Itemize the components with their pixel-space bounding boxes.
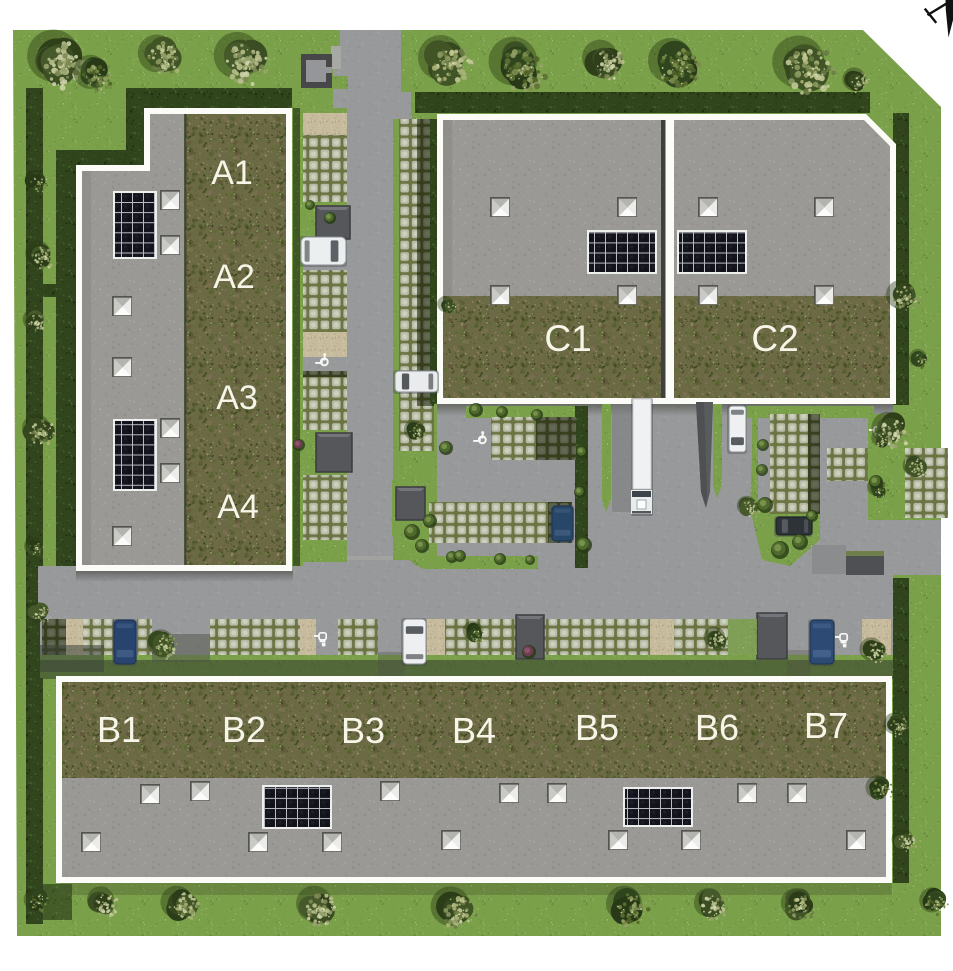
svg-text:A4: A4: [217, 488, 259, 526]
svg-text:A1: A1: [211, 154, 253, 192]
svg-text:B3: B3: [341, 710, 385, 751]
svg-text:B5: B5: [575, 707, 619, 748]
svg-text:B4: B4: [452, 710, 496, 751]
svg-text:A2: A2: [213, 258, 255, 296]
svg-text:B1: B1: [97, 709, 141, 750]
svg-text:B7: B7: [804, 705, 848, 746]
svg-text:C1: C1: [544, 318, 591, 359]
svg-text:A3: A3: [216, 379, 258, 417]
svg-text:B6: B6: [695, 707, 739, 748]
svg-text:C2: C2: [751, 318, 798, 359]
svg-text:B2: B2: [222, 709, 266, 750]
